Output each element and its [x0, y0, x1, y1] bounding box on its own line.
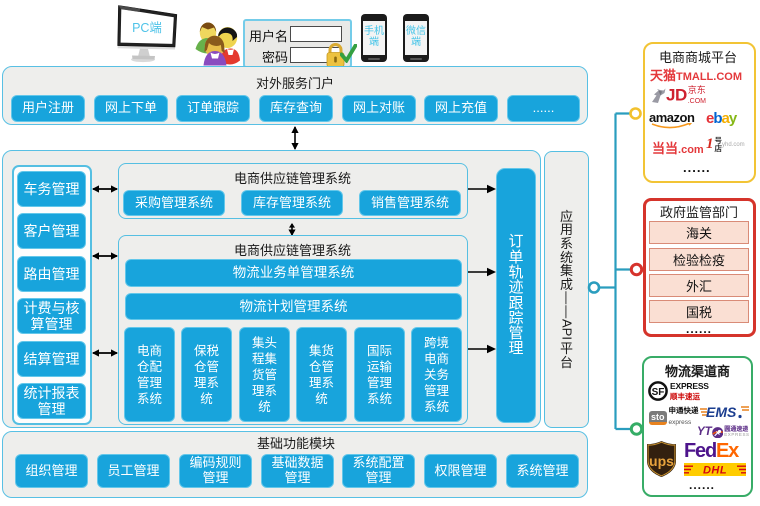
svg-text:EMS: EMS — [706, 404, 737, 420]
svg-text:SF: SF — [652, 387, 665, 398]
svg-text:ups: ups — [649, 453, 674, 469]
svg-text:PC端: PC端 — [132, 21, 162, 35]
svg-text:DHL: DHL — [703, 465, 727, 477]
